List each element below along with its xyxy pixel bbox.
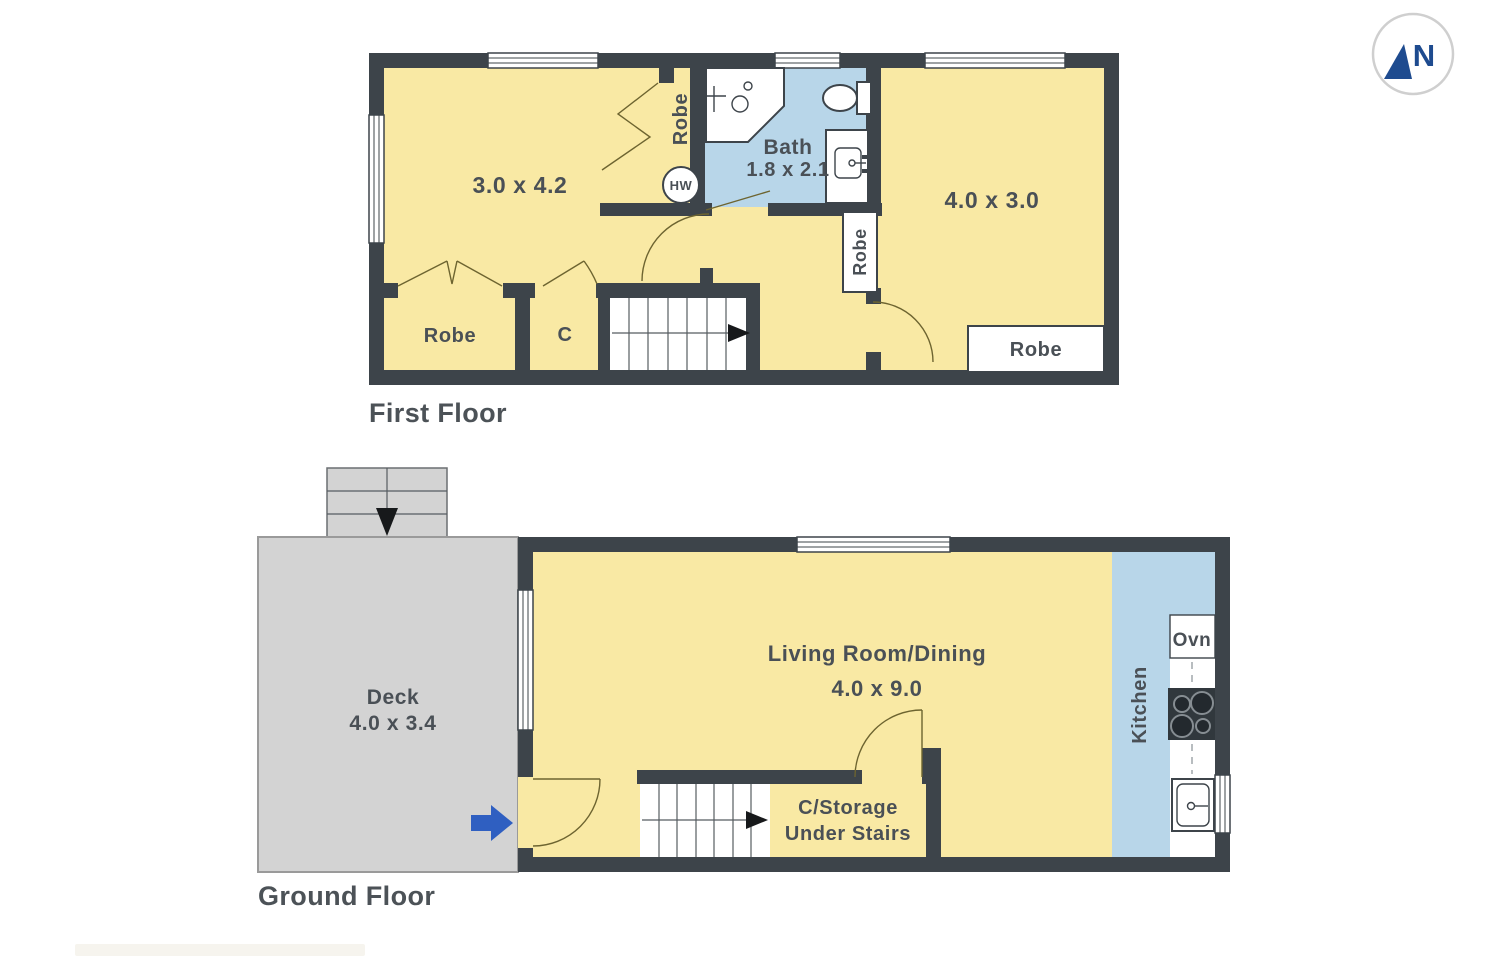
- floorplan-drawing: HW 3.0 x 4.2 4.0 x 3.0 Bath 1.8 x 2.1 Ro…: [0, 0, 1500, 956]
- footer-watermark: [75, 944, 365, 956]
- ground-floor-plan: Living Room/Dining 4.0 x 9.0 Deck 4.0 x …: [258, 468, 1230, 911]
- first-floor-title: First Floor: [369, 398, 507, 428]
- kitchen-counter: [1168, 615, 1215, 857]
- hot-water-unit: HW: [663, 167, 699, 203]
- vanity-sink-icon: [826, 130, 868, 203]
- first-floor-plan: HW 3.0 x 4.2 4.0 x 3.0 Bath 1.8 x 2.1 Ro…: [369, 53, 1119, 428]
- living-name-label: Living Room/Dining: [768, 641, 987, 666]
- window: [518, 590, 533, 730]
- kitchen-label: Kitchen: [1129, 666, 1151, 744]
- bath-dims-label: 1.8 x 2.1: [746, 159, 829, 181]
- entry-door-opening: [518, 777, 533, 848]
- external-stairs: [327, 468, 447, 537]
- living-dims-label: 4.0 x 9.0: [831, 676, 922, 701]
- kitchen-sink-icon: [1172, 779, 1214, 831]
- window: [488, 53, 598, 68]
- cooktop-icon: [1168, 688, 1215, 740]
- window: [369, 115, 384, 243]
- floorplan-page: HW 3.0 x 4.2 4.0 x 3.0 Bath 1.8 x 2.1 Ro…: [0, 0, 1500, 956]
- stairs-first-floor: [610, 298, 750, 370]
- deck-dims-label: 4.0 x 3.4: [349, 712, 436, 735]
- window: [1215, 775, 1230, 833]
- toilet-icon: [823, 82, 871, 114]
- hot-water-label: HW: [670, 178, 693, 193]
- north-compass-icon: N: [1373, 14, 1453, 94]
- bedroom1-dims-label: 3.0 x 4.2: [473, 172, 568, 198]
- ground-floor-title: Ground Floor: [258, 881, 435, 911]
- north-letter: N: [1413, 38, 1435, 73]
- storage-label-line2: Under Stairs: [785, 823, 911, 845]
- bath-name-label: Bath: [763, 136, 812, 159]
- window: [925, 53, 1065, 68]
- window: [797, 537, 950, 552]
- storage-label-line1: C/Storage: [798, 797, 898, 819]
- robe-room-label: Robe: [424, 325, 476, 347]
- robe-recess-label: Robe: [670, 93, 692, 145]
- window: [775, 53, 840, 68]
- stairs-ground-floor: [640, 784, 770, 857]
- oven-label: Ovn: [1173, 630, 1212, 651]
- bedroom2-dims-label: 4.0 x 3.0: [945, 187, 1040, 213]
- deck-name-label: Deck: [367, 686, 420, 709]
- robe-niche-label: Robe: [850, 228, 870, 275]
- bedroom2-robe-label: Robe: [1010, 339, 1062, 361]
- closet-label: C: [557, 324, 572, 346]
